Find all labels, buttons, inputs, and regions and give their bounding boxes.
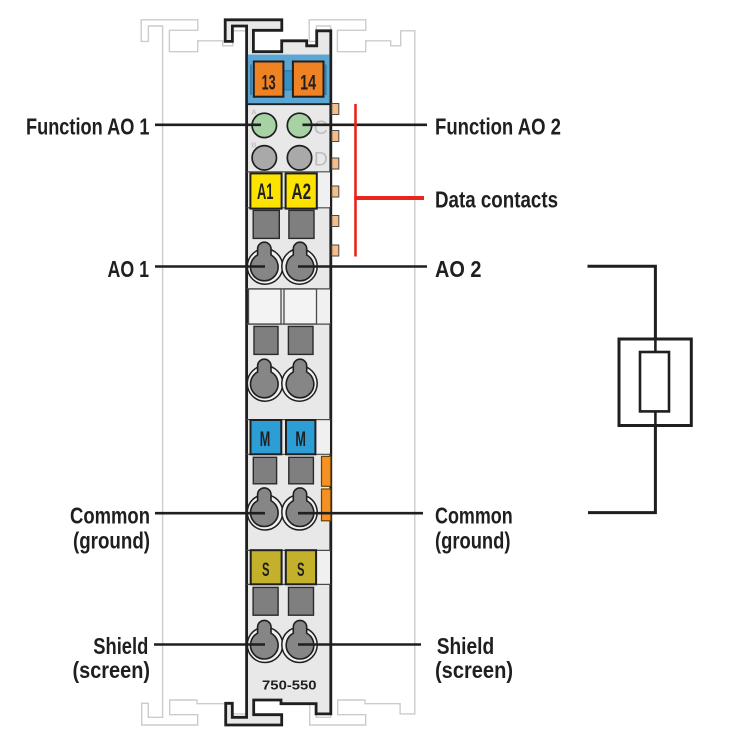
svg-text:Shield: Shield [93, 633, 148, 659]
svg-text:Data contacts: Data contacts [435, 186, 558, 212]
svg-text:(screen): (screen) [73, 657, 151, 683]
svg-text:(ground): (ground) [435, 527, 511, 553]
svg-text:13: 13 [262, 71, 276, 95]
svg-text:Function AO 1: Function AO 1 [26, 114, 150, 140]
svg-text:14: 14 [300, 71, 316, 95]
svg-text:S: S [262, 559, 270, 581]
svg-text:Common: Common [70, 502, 150, 528]
svg-text:M: M [295, 428, 306, 451]
svg-text:A1: A1 [257, 179, 274, 204]
svg-text:AO 2: AO 2 [435, 256, 482, 282]
svg-text:Function AO 2: Function AO 2 [435, 114, 561, 140]
svg-text:S: S [297, 559, 305, 581]
svg-text:(ground): (ground) [73, 527, 150, 553]
svg-text:A2: A2 [292, 179, 312, 204]
svg-text:Shield: Shield [437, 633, 495, 659]
svg-text:Common: Common [435, 502, 513, 528]
svg-text:D: D [314, 149, 328, 171]
svg-text:750-550: 750-550 [262, 678, 317, 693]
svg-text:AO 1: AO 1 [108, 256, 150, 282]
svg-text:(screen): (screen) [435, 657, 513, 683]
svg-text:C: C [314, 117, 328, 139]
svg-text:M: M [260, 428, 271, 451]
